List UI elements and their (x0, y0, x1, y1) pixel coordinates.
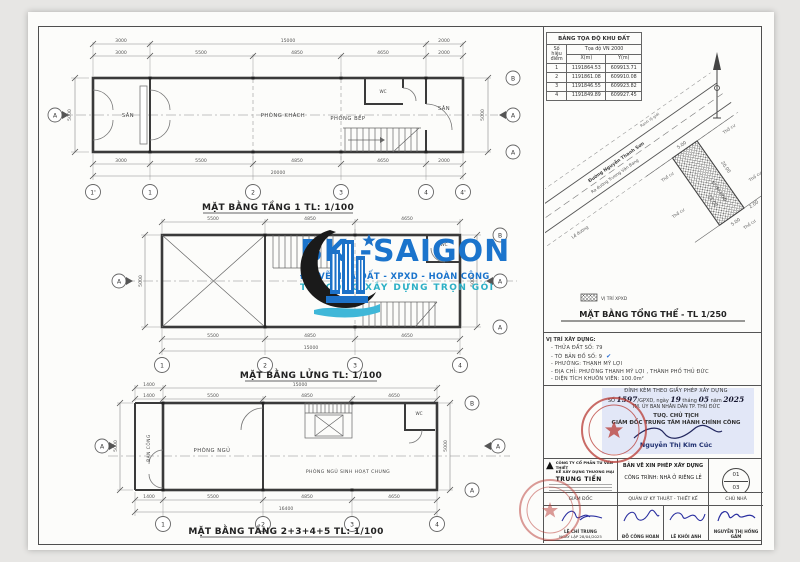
svg-text:1: 1 (160, 363, 164, 370)
dim-label: 1400 (143, 393, 155, 399)
dim-total-label: 20000 (271, 170, 286, 176)
svg-text:1: 1 (148, 190, 152, 197)
room-label-ngu: PHÒNG NGỦ (194, 446, 231, 454)
svg-text:VỊ TRÍ XPXD: VỊ TRÍ XPXD (601, 295, 628, 302)
dim-label: 4650 (388, 393, 400, 399)
bk-saigon-logo: BK -SAIGON ĐO VẼ NHÀ ĐẤT - XPXD - HOÀN C… (296, 226, 574, 326)
dim-label: 5000 (480, 109, 486, 121)
signer-name: LÊ KHÔI ANH (664, 534, 708, 539)
dim-label: 4850 (291, 50, 303, 56)
floor-plan-3-drawing: 1400 15000 1400 5500 4850 4650 1400 5500… (90, 378, 530, 540)
role-owner: CHỦ NHÀ (709, 493, 763, 506)
location-heading: VỊ TRÍ XÂY DỰNG: (546, 337, 758, 343)
grid-bubbles-bottom: 1'12344' (86, 185, 471, 200)
dim-label: 1400 (143, 494, 155, 500)
permit-approval-box: ĐÍNH KÈM THEO GIẤY PHÉP XÂY DỰNG SỐ 1597… (544, 386, 762, 458)
svg-text:B: B (511, 76, 515, 83)
dim-label: 5500 (207, 494, 219, 500)
bk-saigon-logo-icon (296, 226, 382, 322)
svg-text:3: 3 (353, 363, 357, 370)
dim-label: 15000 (281, 38, 296, 44)
project-name: CÔNG TRÌNH: NHÀ Ở RIÊNG LẺ (618, 475, 708, 481)
sheet-number: 01 (733, 469, 740, 481)
official-stamp (572, 394, 656, 464)
signature-cell-owner: NGUYỄN THỊ HỒNG GẤM (709, 506, 763, 540)
drawing-title-cell: BẢN VẼ XIN PHÉP XÂY DỰNG CÔNG TRÌNH: NHÀ… (618, 459, 709, 493)
dim-label: 4650 (401, 216, 413, 222)
neighbor-label: Thổ cư (721, 123, 736, 136)
dim-label: 2000 (438, 38, 450, 44)
signature-cell-tech1: ĐỖ CÔNG HOAN (618, 506, 664, 540)
sheet-number-circle: 01 03 (722, 468, 750, 493)
svg-text:4: 4 (435, 522, 439, 529)
check-icon: ✔ (606, 353, 611, 360)
blueprint-page: { "colors": { "sheet_bg": "#fcfcfa", "pa… (0, 0, 800, 562)
dim-label: 4650 (377, 158, 389, 164)
sheet-total: 03 (733, 482, 740, 493)
section-marker-right: A (484, 439, 505, 453)
floor-plan-1-drawing: 3000 15000 2000 3000 5500 4850 4650 2000… (43, 34, 543, 216)
site-plan-title: MẶT BẰNG TỔNG THỂ - TL 1/250 (579, 307, 727, 319)
svg-text:4: 4 (458, 363, 462, 370)
room-label-chung: PHÒNG NGỦ SINH HOẠT CHUNG (306, 467, 390, 475)
company-stamp (514, 470, 590, 546)
svg-text:1: 1 (161, 522, 165, 529)
svg-text:2: 2 (251, 190, 255, 197)
dim-label: 4850 (304, 333, 316, 339)
svg-text:2: 2 (263, 363, 267, 370)
dim-label: 2000 (438, 158, 450, 164)
room-label-san2: SÂN (438, 105, 450, 112)
signature (621, 508, 661, 526)
dim-label: 5000 (443, 440, 449, 452)
location-line: - TỜ BẢN ĐỒ SỐ: 9✔ (551, 353, 758, 360)
dim-label: 5500 (195, 50, 207, 56)
site-legend: VỊ TRÍ XPXD (581, 294, 628, 302)
void-cross (162, 235, 265, 327)
role-technical: QUẢN LÝ KỸ THUẬT - THIẾT KẾ (618, 493, 709, 506)
dim-label: 2000 (438, 50, 450, 56)
section-marker-right: A (499, 108, 520, 122)
svg-text:B: B (470, 401, 474, 408)
signer-name: NGUYỄN THỊ HỒNG GẤM (709, 529, 763, 539)
dim-label: 5500 (207, 333, 219, 339)
dim-total-label: 15000 (304, 345, 319, 351)
dim-label: 4850 (291, 158, 303, 164)
dim-label: 4650 (377, 50, 389, 56)
site-dim: 20.00 (719, 160, 732, 174)
neighbor-label: Thổ cư (747, 170, 761, 183)
signature (667, 508, 707, 526)
neighbor-label: Thổ cư (659, 171, 674, 184)
dim-label: 5500 (207, 216, 219, 222)
room-label-khach: PHÒNG KHÁCH (261, 112, 305, 119)
neighbor-label: Thổ cư (670, 207, 685, 220)
svg-text:3: 3 (339, 190, 343, 197)
dim-total-label: 16400 (279, 506, 294, 512)
dim-label: 5000 (138, 275, 144, 287)
drawing-sheet: 3000 15000 2000 3000 5500 4850 4650 2000… (28, 12, 774, 550)
section-marker-left: A (95, 439, 116, 453)
dim-label: 4850 (301, 494, 313, 500)
grid-bubbles-right: B A (465, 396, 479, 497)
dim-label: 3000 (115, 38, 127, 44)
dim-label: 4850 (304, 216, 316, 222)
dim-label: 4650 (401, 333, 413, 339)
svg-text:4: 4 (424, 190, 428, 197)
site-plan-drawing: Đường Nguyễn Thanh Sơn Ra đường Trương V… (545, 40, 761, 332)
plan3-outer-walls (163, 403, 437, 490)
site-dim: 5.00 (730, 217, 742, 228)
dim-label: 5500 (207, 393, 219, 399)
dim-label: 3000 (115, 158, 127, 164)
dim-label: 4650 (388, 494, 400, 500)
room-label-wc: WC (415, 411, 422, 416)
room-label-bancong: BAN CÔNG (146, 434, 151, 462)
location-line: - ĐỊA CHỈ: PHƯỜNG THẠNH MỸ LỢI , THÀNH P… (551, 369, 758, 375)
svg-text:4': 4' (460, 190, 466, 197)
signer-name: ĐỖ CÔNG HOAN (618, 534, 663, 539)
dim-label: 1400 (143, 382, 155, 388)
room-label-san: SÂN (122, 112, 134, 119)
entry-door-panel (140, 86, 147, 144)
neighbor-label: Thổ cư (741, 218, 756, 231)
signature-cell-tech2: LÊ KHÔI ANH (664, 506, 709, 540)
dim-label: 15000 (293, 382, 308, 388)
boundary-label: Ranh lộ giới (639, 111, 660, 128)
section-marker-left: A (48, 108, 69, 122)
room-label-wc: WC (379, 89, 386, 94)
staircase (343, 128, 421, 152)
location-line: - PHƯỜNG: THẠNH MỸ LỢI (551, 361, 758, 367)
staircase-core (305, 403, 352, 438)
sheet-number-cell: 01 03 (709, 459, 763, 493)
section-marker-left: A (112, 274, 133, 288)
location-line: - DIỆN TÍCH KHUÔN VIÊN: 100.0m² (551, 376, 758, 382)
svg-text:1': 1' (90, 190, 96, 197)
room-label-bep: PHÒNG BẾP (330, 114, 365, 122)
signature (714, 507, 758, 527)
dim-label: 3000 (115, 50, 127, 56)
location-line: - THỬA ĐẤT SỐ: 79 (551, 345, 758, 351)
dim-label: 5500 (195, 158, 207, 164)
dim-label: 4850 (301, 393, 313, 399)
location-info: VỊ TRÍ XÂY DỰNG: - THỬA ĐẤT SỐ: 79 - TỜ … (546, 335, 758, 382)
divider-site-location (543, 332, 762, 333)
